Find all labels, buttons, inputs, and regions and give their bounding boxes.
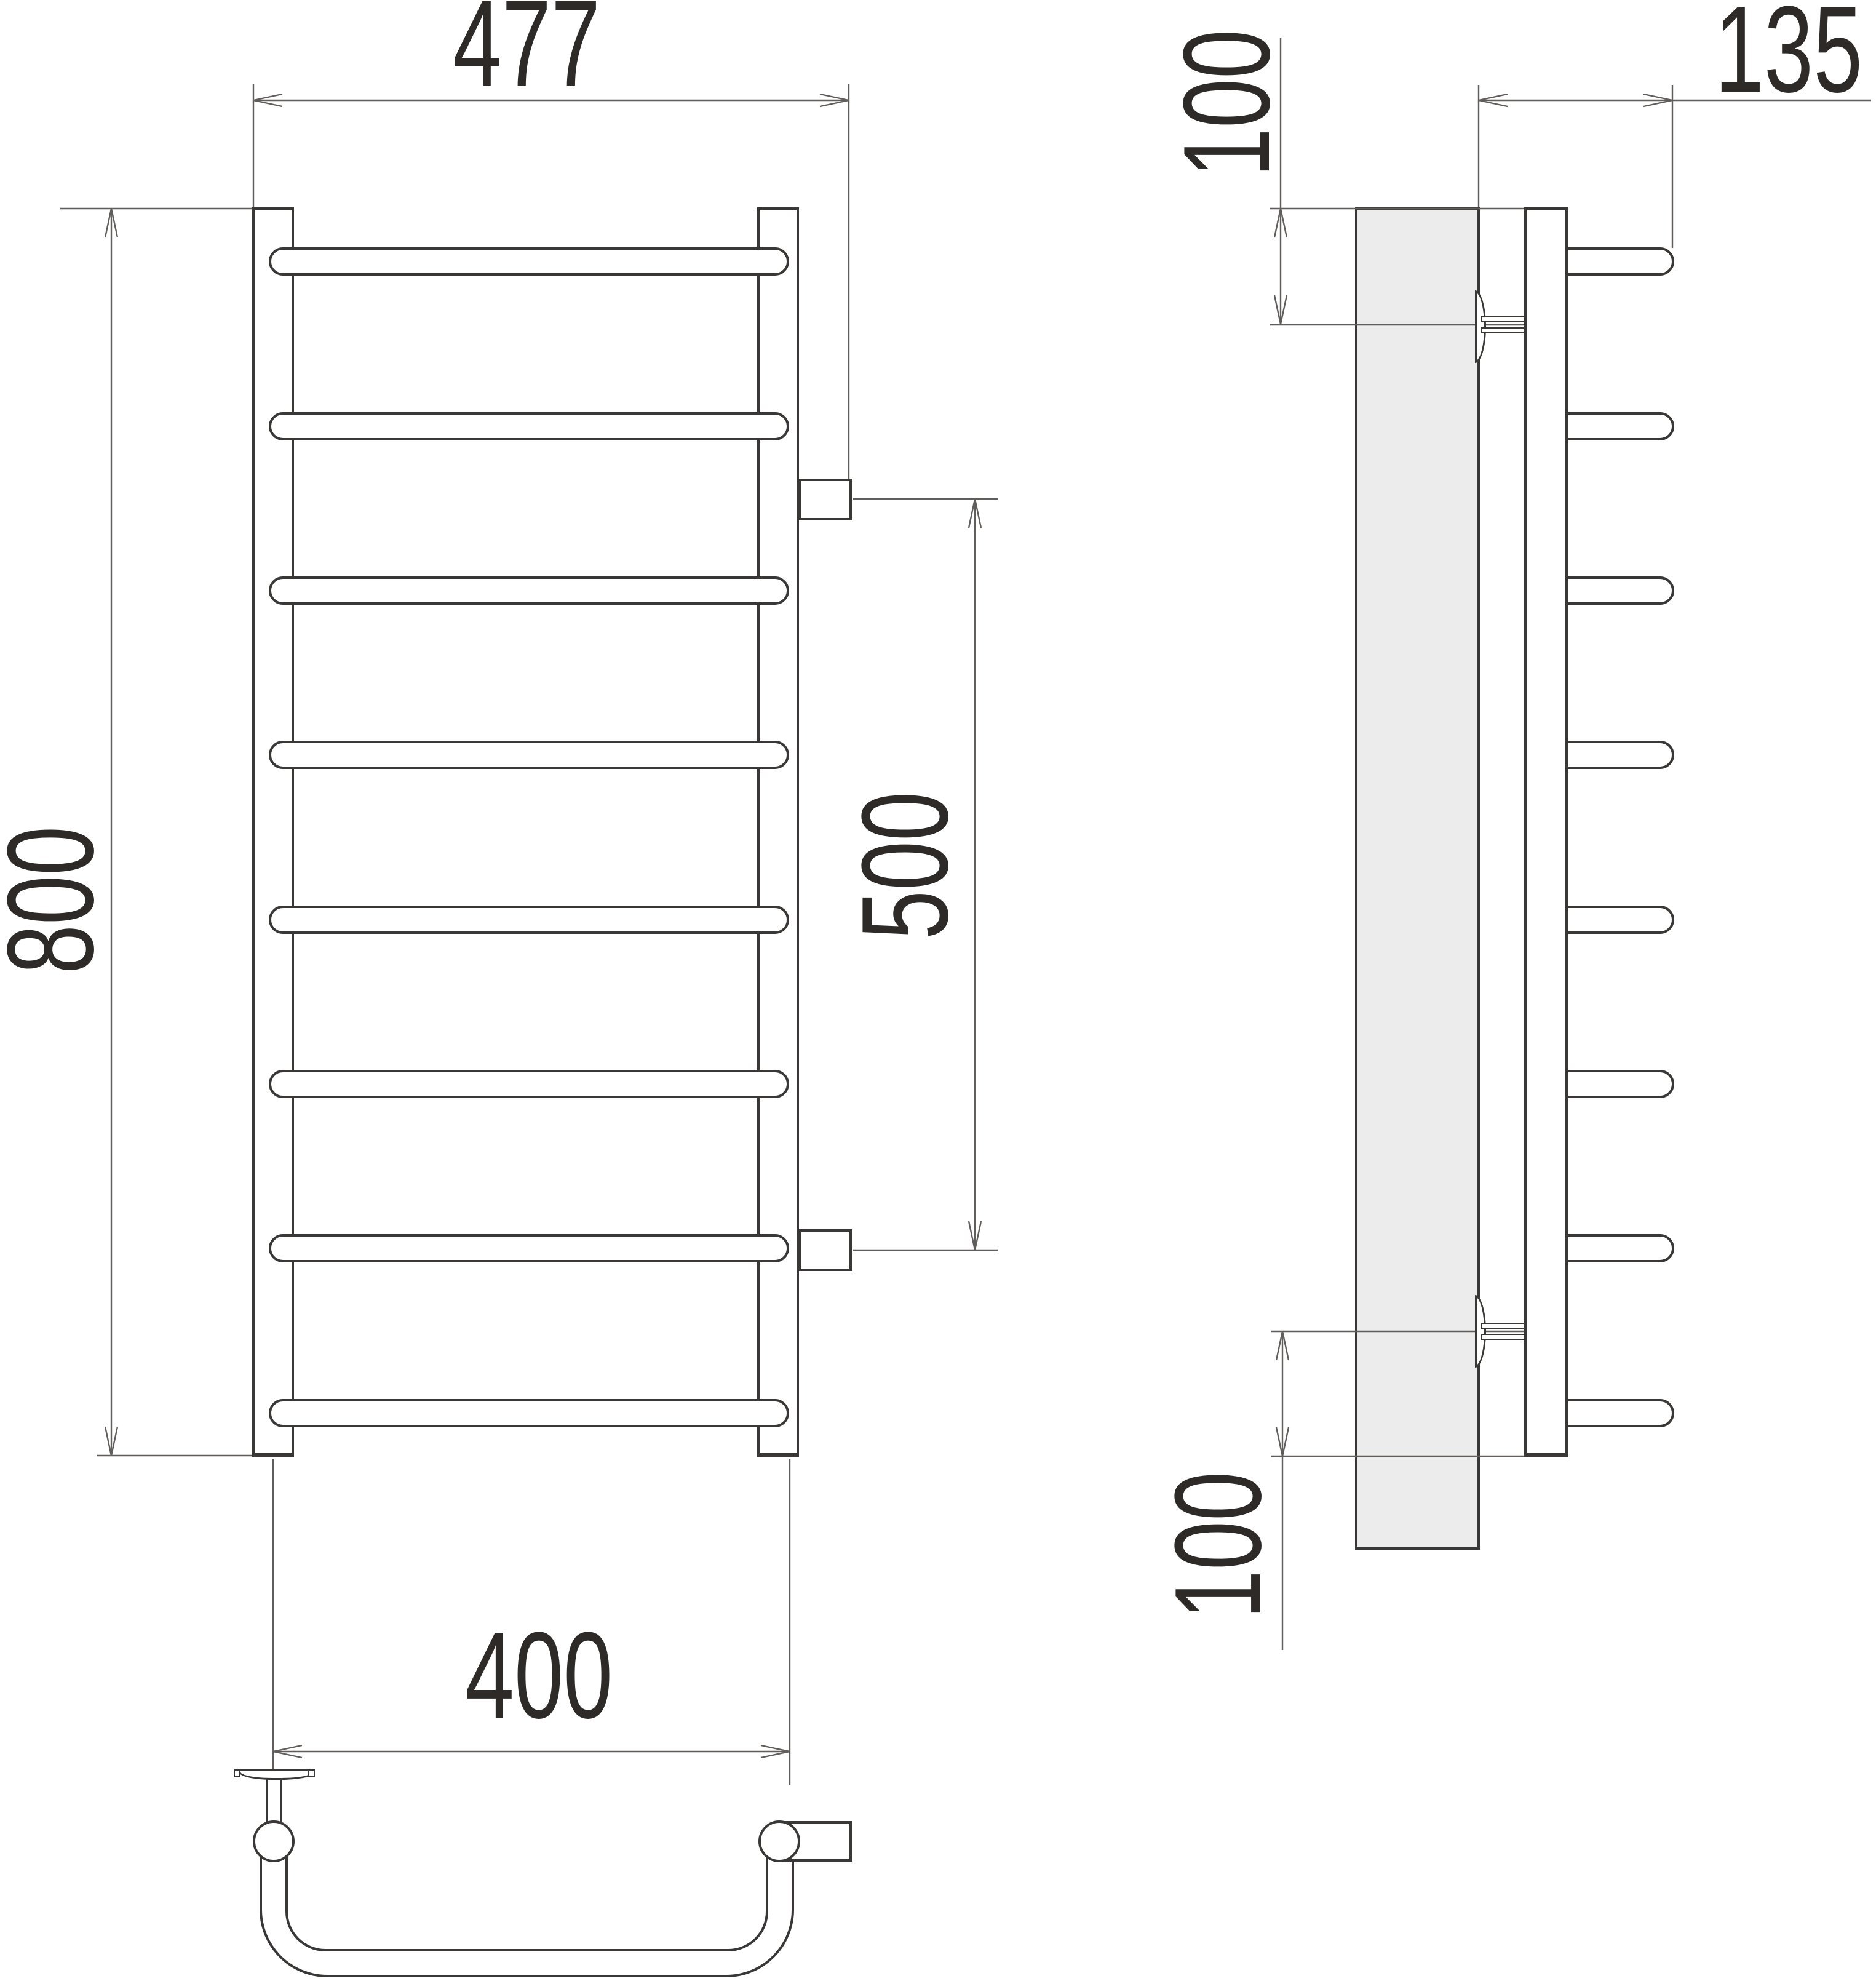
rung	[269, 1234, 789, 1262]
dim-label-front-width: 477	[453, 0, 600, 105]
side-rung	[1565, 576, 1674, 605]
side-rung	[1565, 247, 1674, 276]
side-rung	[1565, 1399, 1674, 1427]
bracket-plate-tab-right	[308, 1769, 315, 1777]
tube-end-left	[253, 1820, 295, 1862]
dim-label-side-bottom-offset: 100	[1157, 1472, 1280, 1619]
dim-label-rail-spacing: 400	[465, 1614, 613, 1737]
front-left-rail	[252, 207, 294, 1457]
bracket-pin-top-upper	[1481, 316, 1525, 322]
technical-drawing-towel-rail: 477 800 400 500 100 135 100	[0, 0, 1876, 1981]
front-right-rail	[757, 207, 799, 1457]
tube-end-right	[758, 1820, 800, 1862]
bracket-plate-tab-left	[234, 1769, 240, 1777]
bracket-pin-top-lower	[1481, 327, 1525, 333]
dim-label-connection-spacing: 500	[844, 792, 967, 939]
side-rung	[1565, 906, 1674, 934]
rung	[269, 576, 789, 605]
side-rail	[1524, 207, 1568, 1457]
dim-label-side-top-offset: 100	[1166, 30, 1289, 177]
rung	[269, 906, 789, 934]
side-rung	[1565, 412, 1674, 440]
u-tube-inner	[285, 1846, 768, 1951]
rung	[269, 1070, 789, 1098]
side-rung	[1565, 741, 1674, 769]
connection-stub-top	[799, 479, 852, 520]
dim-label-front-height: 800	[0, 826, 113, 974]
side-rung	[1565, 1070, 1674, 1098]
rung	[269, 1399, 789, 1427]
connection-stub-bottom	[799, 1229, 852, 1271]
bracket-stem	[266, 1778, 282, 1824]
bracket-pin-bottom-lower	[1481, 1334, 1525, 1340]
dim-label-side-depth: 135	[1715, 0, 1862, 111]
rung	[269, 247, 789, 276]
rung	[269, 412, 789, 440]
side-rung	[1565, 1234, 1674, 1262]
bracket-pin-bottom-upper	[1481, 1323, 1525, 1329]
rung	[269, 741, 789, 769]
